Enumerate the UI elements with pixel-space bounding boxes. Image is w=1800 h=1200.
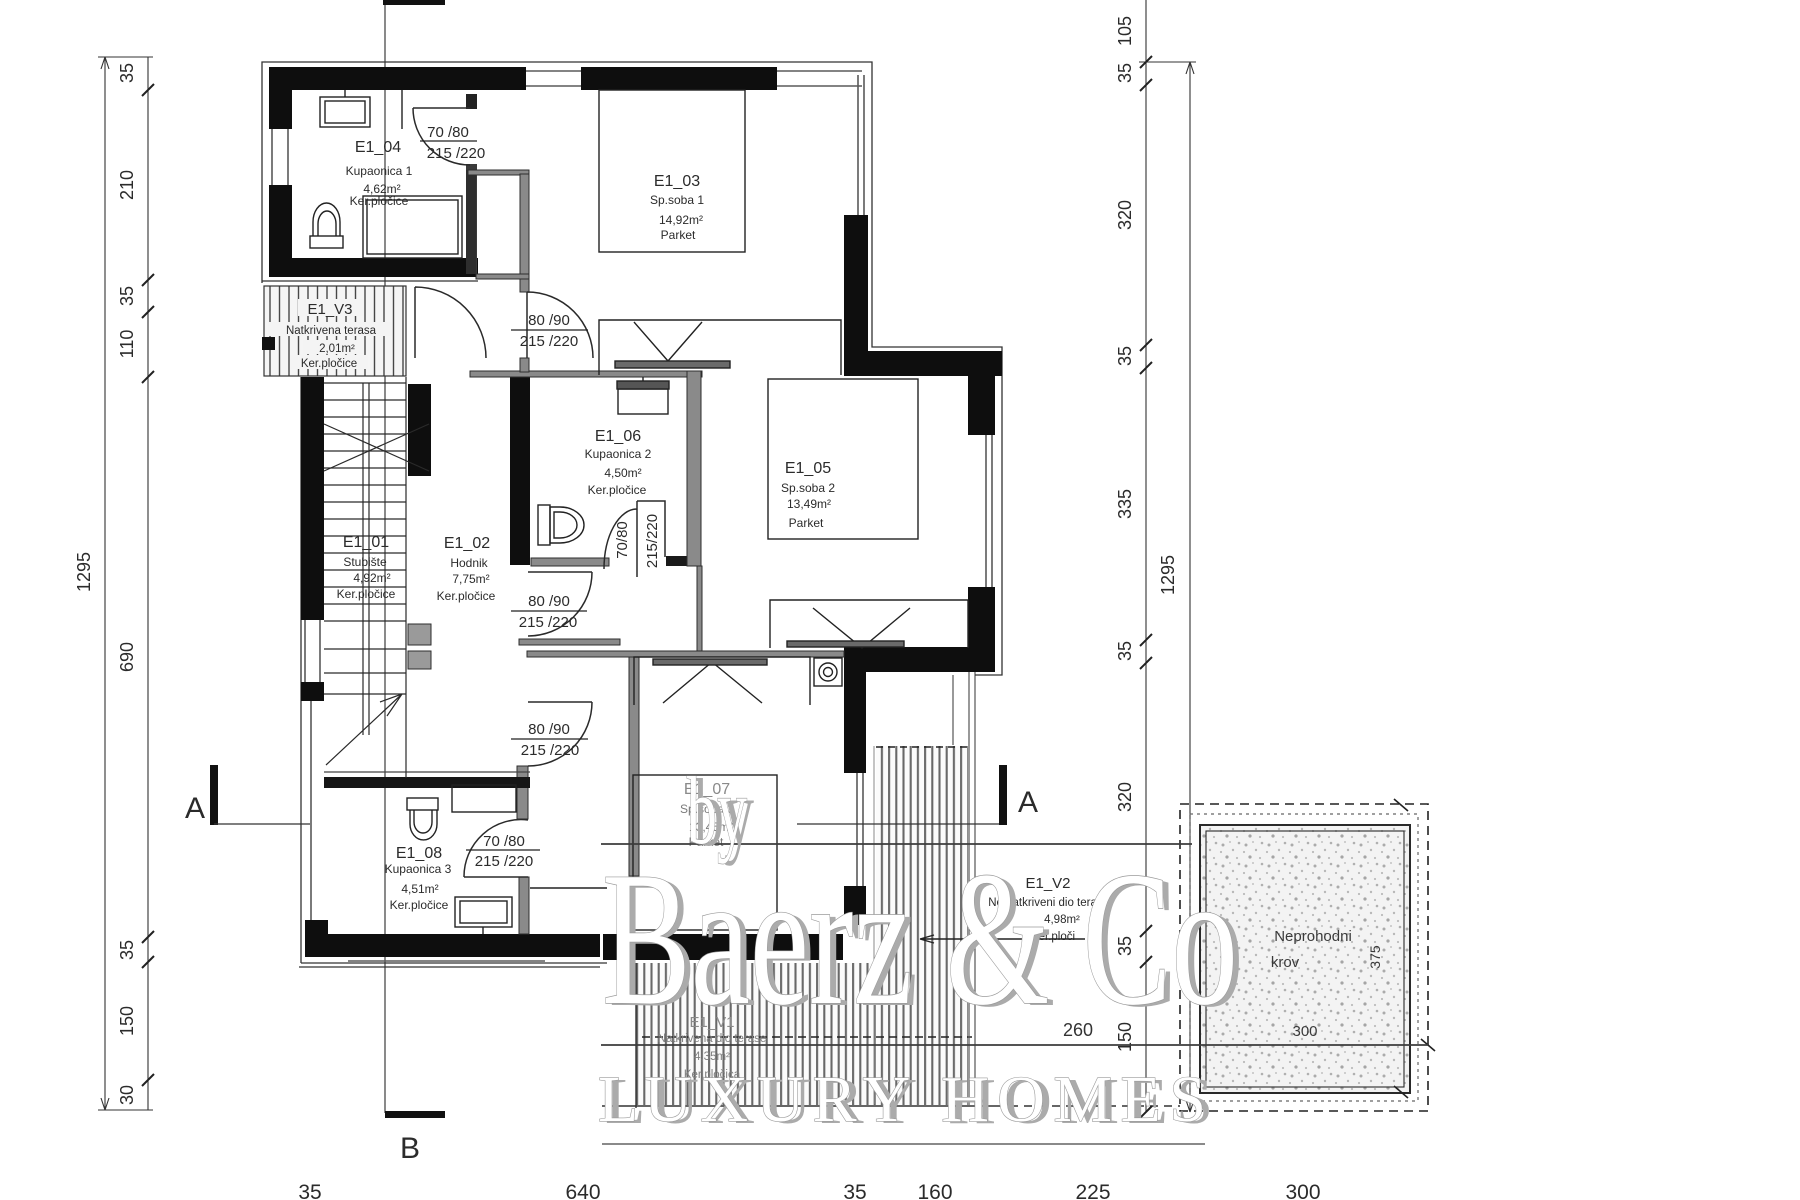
svg-text:110: 110 xyxy=(117,330,137,359)
svg-text:4,92m²: 4,92m² xyxy=(353,571,390,585)
svg-text:7,75m²: 7,75m² xyxy=(452,572,489,586)
svg-text:Kupaonica 1: Kupaonica 1 xyxy=(346,164,413,178)
svg-text:35: 35 xyxy=(1115,641,1135,661)
svg-text:1295: 1295 xyxy=(1158,555,1178,595)
svg-text:Hodnik: Hodnik xyxy=(450,556,488,570)
svg-text:4,51m²: 4,51m² xyxy=(401,882,438,896)
svg-text:690: 690 xyxy=(117,642,137,672)
svg-text:335: 335 xyxy=(1115,489,1135,519)
svg-text:215 /220: 215 /220 xyxy=(427,145,485,162)
svg-text:E1_01: E1_01 xyxy=(343,534,389,551)
svg-text:375: 375 xyxy=(1367,945,1383,969)
svg-text:4,50m²: 4,50m² xyxy=(604,466,641,480)
svg-text:Baerz & Co: Baerz & Co xyxy=(602,832,1238,1045)
svg-text:215 /220: 215 /220 xyxy=(521,742,579,759)
svg-text:Natkrivena terasa: Natkrivena terasa xyxy=(286,325,377,337)
svg-text:320: 320 xyxy=(1115,782,1135,812)
svg-text:70 /80: 70 /80 xyxy=(427,124,469,141)
svg-text:E1_06: E1_06 xyxy=(595,428,641,445)
svg-text:Neprohodni: Neprohodni xyxy=(1274,928,1352,945)
svg-text:210: 210 xyxy=(117,170,137,200)
svg-text:105: 105 xyxy=(1115,16,1135,46)
svg-text:Kupaonica 3: Kupaonica 3 xyxy=(385,862,452,876)
svg-text:35: 35 xyxy=(1115,346,1135,366)
svg-text:2,01m²: 2,01m² xyxy=(319,343,355,355)
svg-text:Ker.pločice: Ker.pločice xyxy=(301,358,357,370)
svg-text:80 /90: 80 /90 xyxy=(528,593,570,610)
svg-text:Stubište: Stubište xyxy=(343,555,387,569)
svg-text:A: A xyxy=(185,792,205,825)
svg-text:215/220: 215/220 xyxy=(644,514,661,568)
svg-text:E1_04: E1_04 xyxy=(355,139,401,156)
svg-text:1295: 1295 xyxy=(74,552,94,592)
svg-text:30: 30 xyxy=(117,1085,137,1105)
svg-text:225: 225 xyxy=(1075,1181,1110,1200)
svg-text:35: 35 xyxy=(1115,63,1135,83)
svg-text:640: 640 xyxy=(565,1181,600,1200)
svg-text:Ker.pločice: Ker.pločice xyxy=(437,589,496,603)
svg-text:215 /220: 215 /220 xyxy=(475,853,533,870)
svg-text:300: 300 xyxy=(1292,1023,1317,1040)
svg-text:35: 35 xyxy=(117,63,137,83)
svg-text:160: 160 xyxy=(917,1181,952,1200)
svg-text:80 /90: 80 /90 xyxy=(528,312,570,329)
svg-text:Parket: Parket xyxy=(661,228,696,242)
svg-text:E1_05: E1_05 xyxy=(785,460,831,477)
svg-text:70 /80: 70 /80 xyxy=(483,833,525,850)
svg-text:krov: krov xyxy=(1271,954,1300,971)
svg-text:35: 35 xyxy=(117,286,137,306)
svg-text:E1_08: E1_08 xyxy=(396,845,442,862)
svg-text:Ker.pločice: Ker.pločice xyxy=(337,587,396,601)
svg-text:215 /220: 215 /220 xyxy=(520,333,578,350)
svg-text:L U X U R Y H O M E S: L U X U R Y H O M E S xyxy=(598,1063,1206,1136)
svg-text:13,49m²: 13,49m² xyxy=(787,497,831,511)
svg-text:E1_V3: E1_V3 xyxy=(307,301,352,318)
svg-text:320: 320 xyxy=(1115,200,1135,230)
svg-text:215 /220: 215 /220 xyxy=(519,614,577,631)
svg-text:A: A xyxy=(1018,786,1038,819)
svg-text:150: 150 xyxy=(117,1006,137,1036)
svg-text:14,92m²: 14,92m² xyxy=(659,213,703,227)
svg-text:Sp.soba 1: Sp.soba 1 xyxy=(650,193,704,207)
svg-text:35: 35 xyxy=(298,1181,321,1200)
svg-text:4,35m²: 4,35m² xyxy=(694,1051,730,1063)
svg-text:Kupaonica 2: Kupaonica 2 xyxy=(585,447,652,461)
svg-text:35: 35 xyxy=(843,1181,866,1200)
svg-text:70/80: 70/80 xyxy=(614,521,631,559)
svg-text:E1_03: E1_03 xyxy=(654,173,700,190)
svg-text:80 /90: 80 /90 xyxy=(528,721,570,738)
svg-text:Sp.soba 2: Sp.soba 2 xyxy=(781,481,835,495)
svg-text:Ker.pločice: Ker.pločice xyxy=(350,194,409,208)
svg-text:35: 35 xyxy=(117,940,137,960)
svg-text:B: B xyxy=(400,1132,420,1165)
svg-text:Parket: Parket xyxy=(789,516,824,530)
svg-text:Ker.pločice: Ker.pločice xyxy=(390,898,449,912)
svg-text:300: 300 xyxy=(1285,1181,1320,1200)
svg-text:E1_02: E1_02 xyxy=(444,535,490,552)
svg-text:Ker.pločice: Ker.pločice xyxy=(588,483,647,497)
